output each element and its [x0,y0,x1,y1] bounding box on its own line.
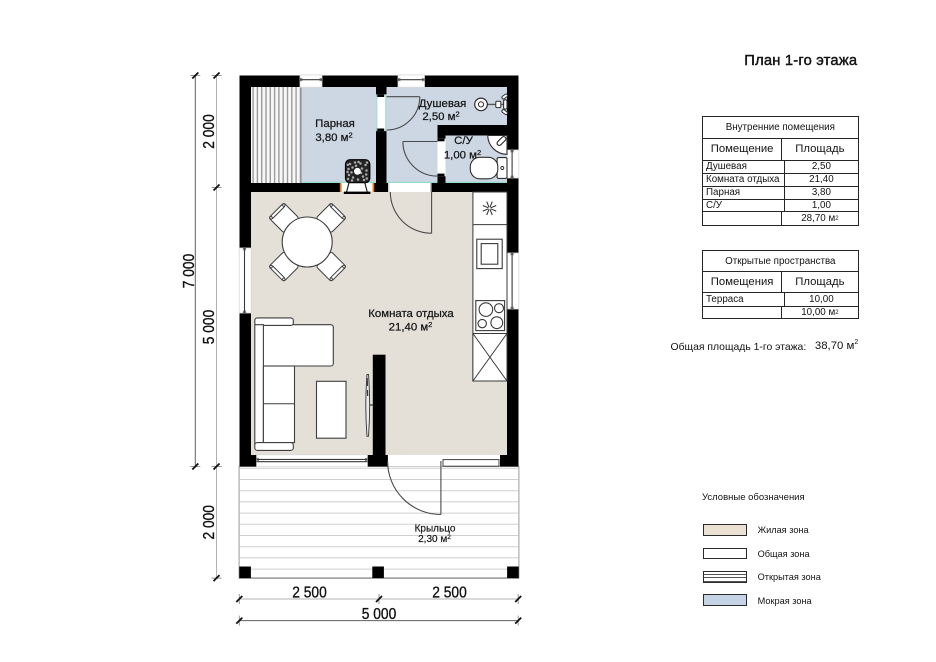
svg-text:2 000: 2 000 [201,505,218,540]
svg-text:5 000: 5 000 [362,606,397,623]
svg-text:3,80 м2: 3,80 м2 [315,130,352,144]
svg-text:2 000: 2 000 [201,114,218,149]
svg-text:2,50 м2: 2,50 м2 [422,110,459,124]
svg-text:2 500: 2 500 [432,585,467,602]
svg-text:С/У: С/У [454,135,473,147]
svg-text:1,00 м2: 1,00 м2 [444,148,481,162]
svg-text:Парная: Парная [315,118,355,130]
svg-text:21,40 м2: 21,40 м2 [389,320,433,334]
svg-text:2,30 м2: 2,30 м2 [418,534,451,545]
svg-text:Душевая: Душевая [419,98,467,110]
svg-text:2 500: 2 500 [292,585,327,602]
svg-text:7 000: 7 000 [181,253,198,288]
svg-text:5 000: 5 000 [201,309,218,344]
svg-text:Комната отдыха: Комната отдыха [368,308,454,320]
svg-text:Крыльцо: Крыльцо [415,524,456,535]
